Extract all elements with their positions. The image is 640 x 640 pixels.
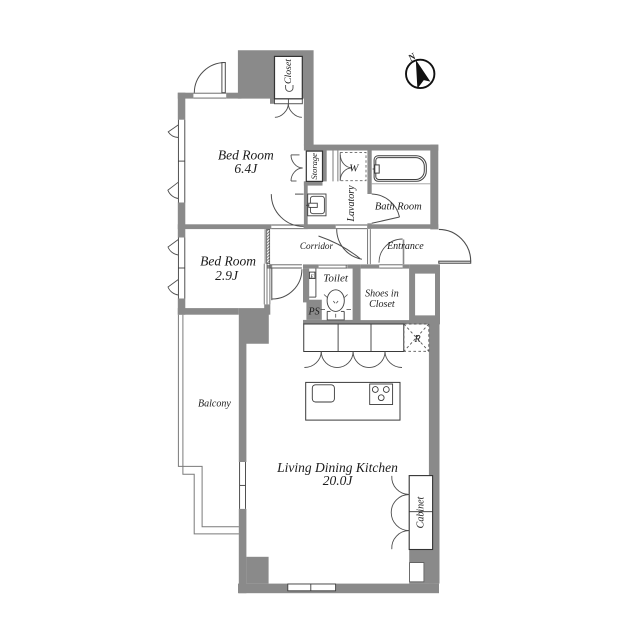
svg-text:Closet: Closet — [283, 59, 294, 84]
svg-text:Cabinet: Cabinet — [416, 496, 427, 528]
svg-text:Corridor: Corridor — [300, 241, 334, 251]
svg-text:R: R — [413, 334, 420, 345]
svg-text:Balcony: Balcony — [198, 399, 231, 410]
svg-text:Toilet: Toilet — [323, 273, 349, 285]
svg-text:Bath Room: Bath Room — [375, 201, 422, 212]
svg-text:Closet: Closet — [369, 299, 395, 310]
svg-text:Storage: Storage — [309, 153, 319, 180]
svg-text:Entrance: Entrance — [386, 241, 424, 252]
svg-text:Shoes in: Shoes in — [365, 288, 399, 299]
svg-text:PS: PS — [308, 306, 320, 317]
svg-text:E: E — [309, 274, 314, 280]
svg-text:6.4J: 6.4J — [234, 161, 258, 176]
svg-text:W: W — [349, 163, 359, 175]
svg-text:Bed Room: Bed Room — [200, 254, 256, 269]
svg-text:Lavatory: Lavatory — [346, 185, 357, 223]
svg-text:2.9J: 2.9J — [215, 268, 239, 283]
svg-text:20.0J: 20.0J — [323, 473, 354, 488]
